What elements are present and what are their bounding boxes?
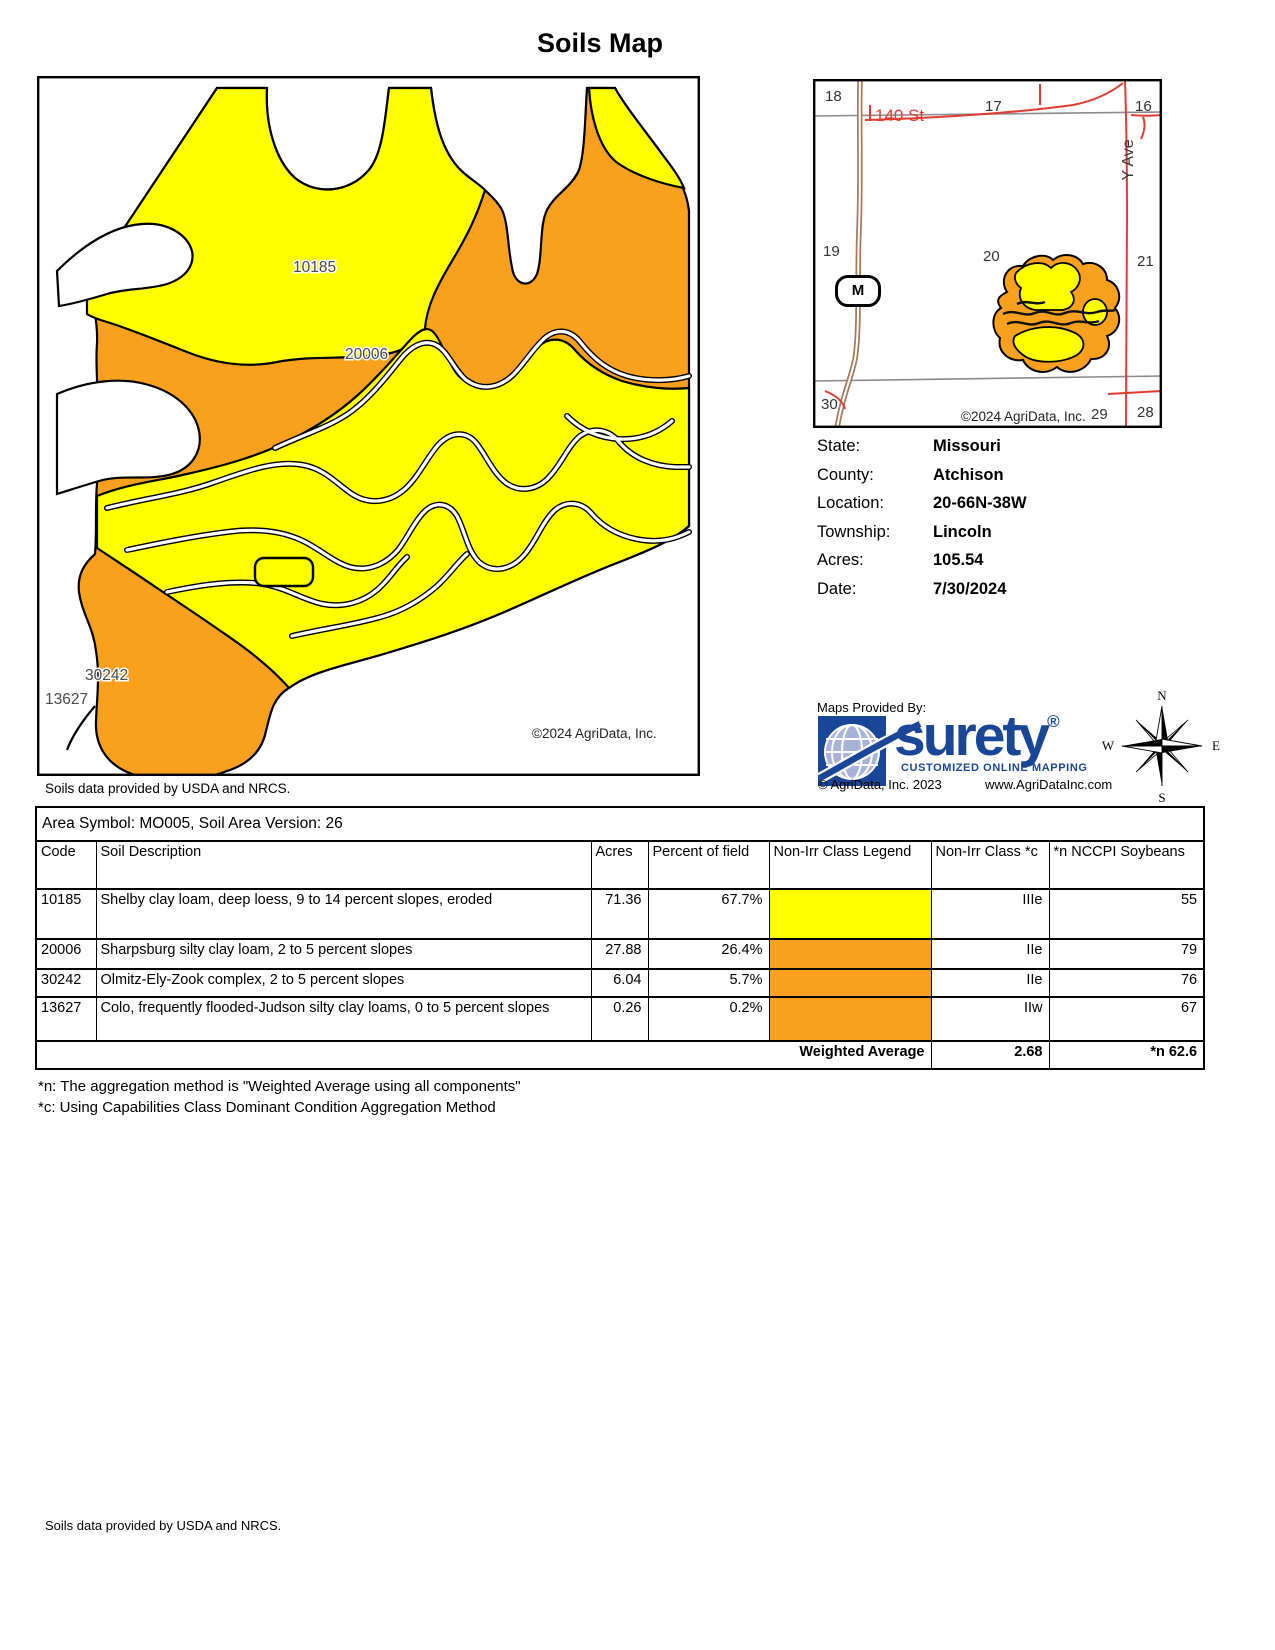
- col-header-acres: Acres: [591, 841, 648, 889]
- soil-description: Colo, frequently flooded-Judson silty cl…: [96, 997, 591, 1041]
- map-label-13627: 13627: [45, 691, 88, 708]
- soils-map-report-page: Soils Map: [0, 0, 1275, 1650]
- info-value: 7/30/2024: [933, 580, 1006, 598]
- soil-description: Sharpsburg silty clay loam, 2 to 5 perce…: [96, 939, 591, 969]
- section-number: 21: [1137, 253, 1154, 270]
- soil-table-row: 10185 Shelby clay loam, deep loess, 9 to…: [36, 889, 1204, 939]
- branding-website: www.AgriDataInc.com: [985, 777, 1112, 792]
- col-header-description: Soil Description: [96, 841, 591, 889]
- soils-table: Area Symbol: MO005, Soil Area Version: 2…: [35, 806, 1203, 1070]
- soil-acres: 27.88: [591, 939, 648, 969]
- road-label-140-st: 140 St: [875, 106, 924, 126]
- location-inset-map: 18 17 16 19 20 21 30 29 28 140 St Y Ave …: [813, 79, 1162, 428]
- section-number: 30: [821, 396, 838, 413]
- page-title: Soils Map: [0, 28, 1200, 59]
- soil-code: 10185: [36, 889, 96, 939]
- info-row-county: County:Atchison: [817, 461, 1027, 490]
- info-row-state: State:Missouri: [817, 432, 1027, 461]
- info-row-date: Date:7/30/2024: [817, 575, 1027, 604]
- weighted-average-row: Weighted Average 2.68 *n 62.6: [36, 1041, 1204, 1069]
- section-number: 29: [1091, 406, 1108, 423]
- map-pond-outline: [255, 558, 313, 586]
- col-header-code: Code: [36, 841, 96, 889]
- info-label: Location:: [817, 489, 933, 518]
- field-info-block: State:Missouri County:Atchison Location:…: [817, 432, 1027, 603]
- inset-mini-soils: [993, 255, 1119, 372]
- soil-acres: 71.36: [591, 889, 648, 939]
- weighted-average-nccpi: *n 62.6: [1049, 1041, 1204, 1069]
- weighted-average-class: 2.68: [931, 1041, 1049, 1069]
- col-header-percent: Percent of field: [648, 841, 769, 889]
- soil-table-row: 30242 Olmitz-Ely-Zook complex, 2 to 5 pe…: [36, 969, 1204, 997]
- section-number: 17: [985, 98, 1002, 115]
- col-header-nccpi: *n NCCPI Soybeans: [1049, 841, 1204, 889]
- soil-class: IIw: [931, 997, 1049, 1041]
- info-row-acres: Acres:105.54: [817, 546, 1027, 575]
- compass-rose-icon: N E S W: [1100, 688, 1224, 806]
- map-label-30242: 30242: [85, 667, 128, 684]
- compass-n-label: N: [1157, 688, 1167, 703]
- soil-percent: 5.7%: [648, 969, 769, 997]
- soil-acres: 0.26: [591, 997, 648, 1041]
- soil-class: IIe: [931, 969, 1049, 997]
- table-footnotes: *n: The aggregation method is "Weighted …: [38, 1076, 521, 1118]
- section-number: 28: [1137, 404, 1154, 421]
- soil-table-row: 20006 Sharpsburg silty clay loam, 2 to 5…: [36, 939, 1204, 969]
- soil-class: IIe: [931, 939, 1049, 969]
- weighted-average-label: Weighted Average: [36, 1041, 931, 1069]
- info-value: Atchison: [933, 466, 1004, 484]
- info-value: Lincoln: [933, 523, 992, 541]
- map-copyright: ©2024 AgriData, Inc.: [532, 726, 657, 741]
- surety-tagline: CUSTOMIZED ONLINE MAPPING: [901, 762, 1088, 774]
- soil-percent: 0.2%: [648, 997, 769, 1041]
- soil-table-row: 13627 Colo, frequently flooded-Judson si…: [36, 997, 1204, 1041]
- col-header-class: Non-Irr Class *c: [931, 841, 1049, 889]
- legend-color-swatch: [769, 939, 931, 969]
- legend-color-swatch: [769, 889, 931, 939]
- compass-e-label: E: [1212, 738, 1220, 753]
- info-row-location: Location:20-66N-38W: [817, 489, 1027, 518]
- section-number: 18: [825, 88, 842, 105]
- inset-copyright: ©2024 AgriData, Inc.: [961, 409, 1086, 424]
- compass-w-label: W: [1102, 738, 1115, 753]
- highway-m-marker: M: [835, 275, 881, 307]
- legend-color-swatch: [769, 969, 931, 997]
- table-header-row: Code Soil Description Acres Percent of f…: [36, 841, 1204, 889]
- soil-nccpi: 55: [1049, 889, 1204, 939]
- surety-wordmark: surety: [894, 704, 1047, 768]
- map-label-10185: 10185: [293, 259, 336, 276]
- map-label-20006: 20006: [345, 346, 388, 363]
- soil-nccpi: 79: [1049, 939, 1204, 969]
- section-number: 20: [983, 248, 1000, 265]
- soil-percent: 26.4%: [648, 939, 769, 969]
- soil-code: 20006: [36, 939, 96, 969]
- soil-code: 30242: [36, 969, 96, 997]
- section-number: 19: [823, 243, 840, 260]
- soil-description: Olmitz-Ely-Zook complex, 2 to 5 percent …: [96, 969, 591, 997]
- info-value: Missouri: [933, 437, 1001, 455]
- soil-code: 13627: [36, 997, 96, 1041]
- info-value: 105.54: [933, 551, 983, 569]
- info-label: Date:: [817, 575, 933, 604]
- table-area-symbol-row: Area Symbol: MO005, Soil Area Version: 2…: [36, 807, 1204, 841]
- soil-description: Shelby clay loam, deep loess, 9 to 14 pe…: [96, 889, 591, 939]
- section-number: 16: [1135, 98, 1152, 115]
- info-row-township: Township:Lincoln: [817, 518, 1027, 547]
- soil-percent: 67.7%: [648, 889, 769, 939]
- soil-nccpi: 67: [1049, 997, 1204, 1041]
- info-label: Township:: [817, 518, 933, 547]
- info-label: County:: [817, 461, 933, 490]
- soil-acres: 6.04: [591, 969, 648, 997]
- footer-source-note: Soils data provided by USDA and NRCS.: [45, 1518, 281, 1533]
- area-symbol-title: Area Symbol: MO005, Soil Area Version: 2…: [36, 807, 1204, 841]
- registered-mark: ®: [1047, 712, 1060, 731]
- footnote-n: *n: The aggregation method is "Weighted …: [38, 1076, 521, 1097]
- footnote-c: *c: Using Capabilities Class Dominant Co…: [38, 1097, 521, 1118]
- surety-logo-text: surety®: [894, 708, 1060, 765]
- info-label: State:: [817, 432, 933, 461]
- map-source-note: Soils data provided by USDA and NRCS.: [45, 781, 290, 796]
- soils-map: 10185 20006 30242 13627 ©2024 AgriData, …: [37, 76, 700, 776]
- compass-s-label: S: [1158, 790, 1165, 805]
- info-value: 20-66N-38W: [933, 494, 1027, 512]
- branding-copyright: © AgriData, Inc. 2023: [818, 777, 942, 792]
- soil-class: IIIe: [931, 889, 1049, 939]
- soil-nccpi: 76: [1049, 969, 1204, 997]
- info-label: Acres:: [817, 546, 933, 575]
- road-label-y-ave: Y Ave: [1120, 128, 1138, 192]
- col-header-legend: Non-Irr Class Legend: [769, 841, 931, 889]
- legend-color-swatch: [769, 997, 931, 1041]
